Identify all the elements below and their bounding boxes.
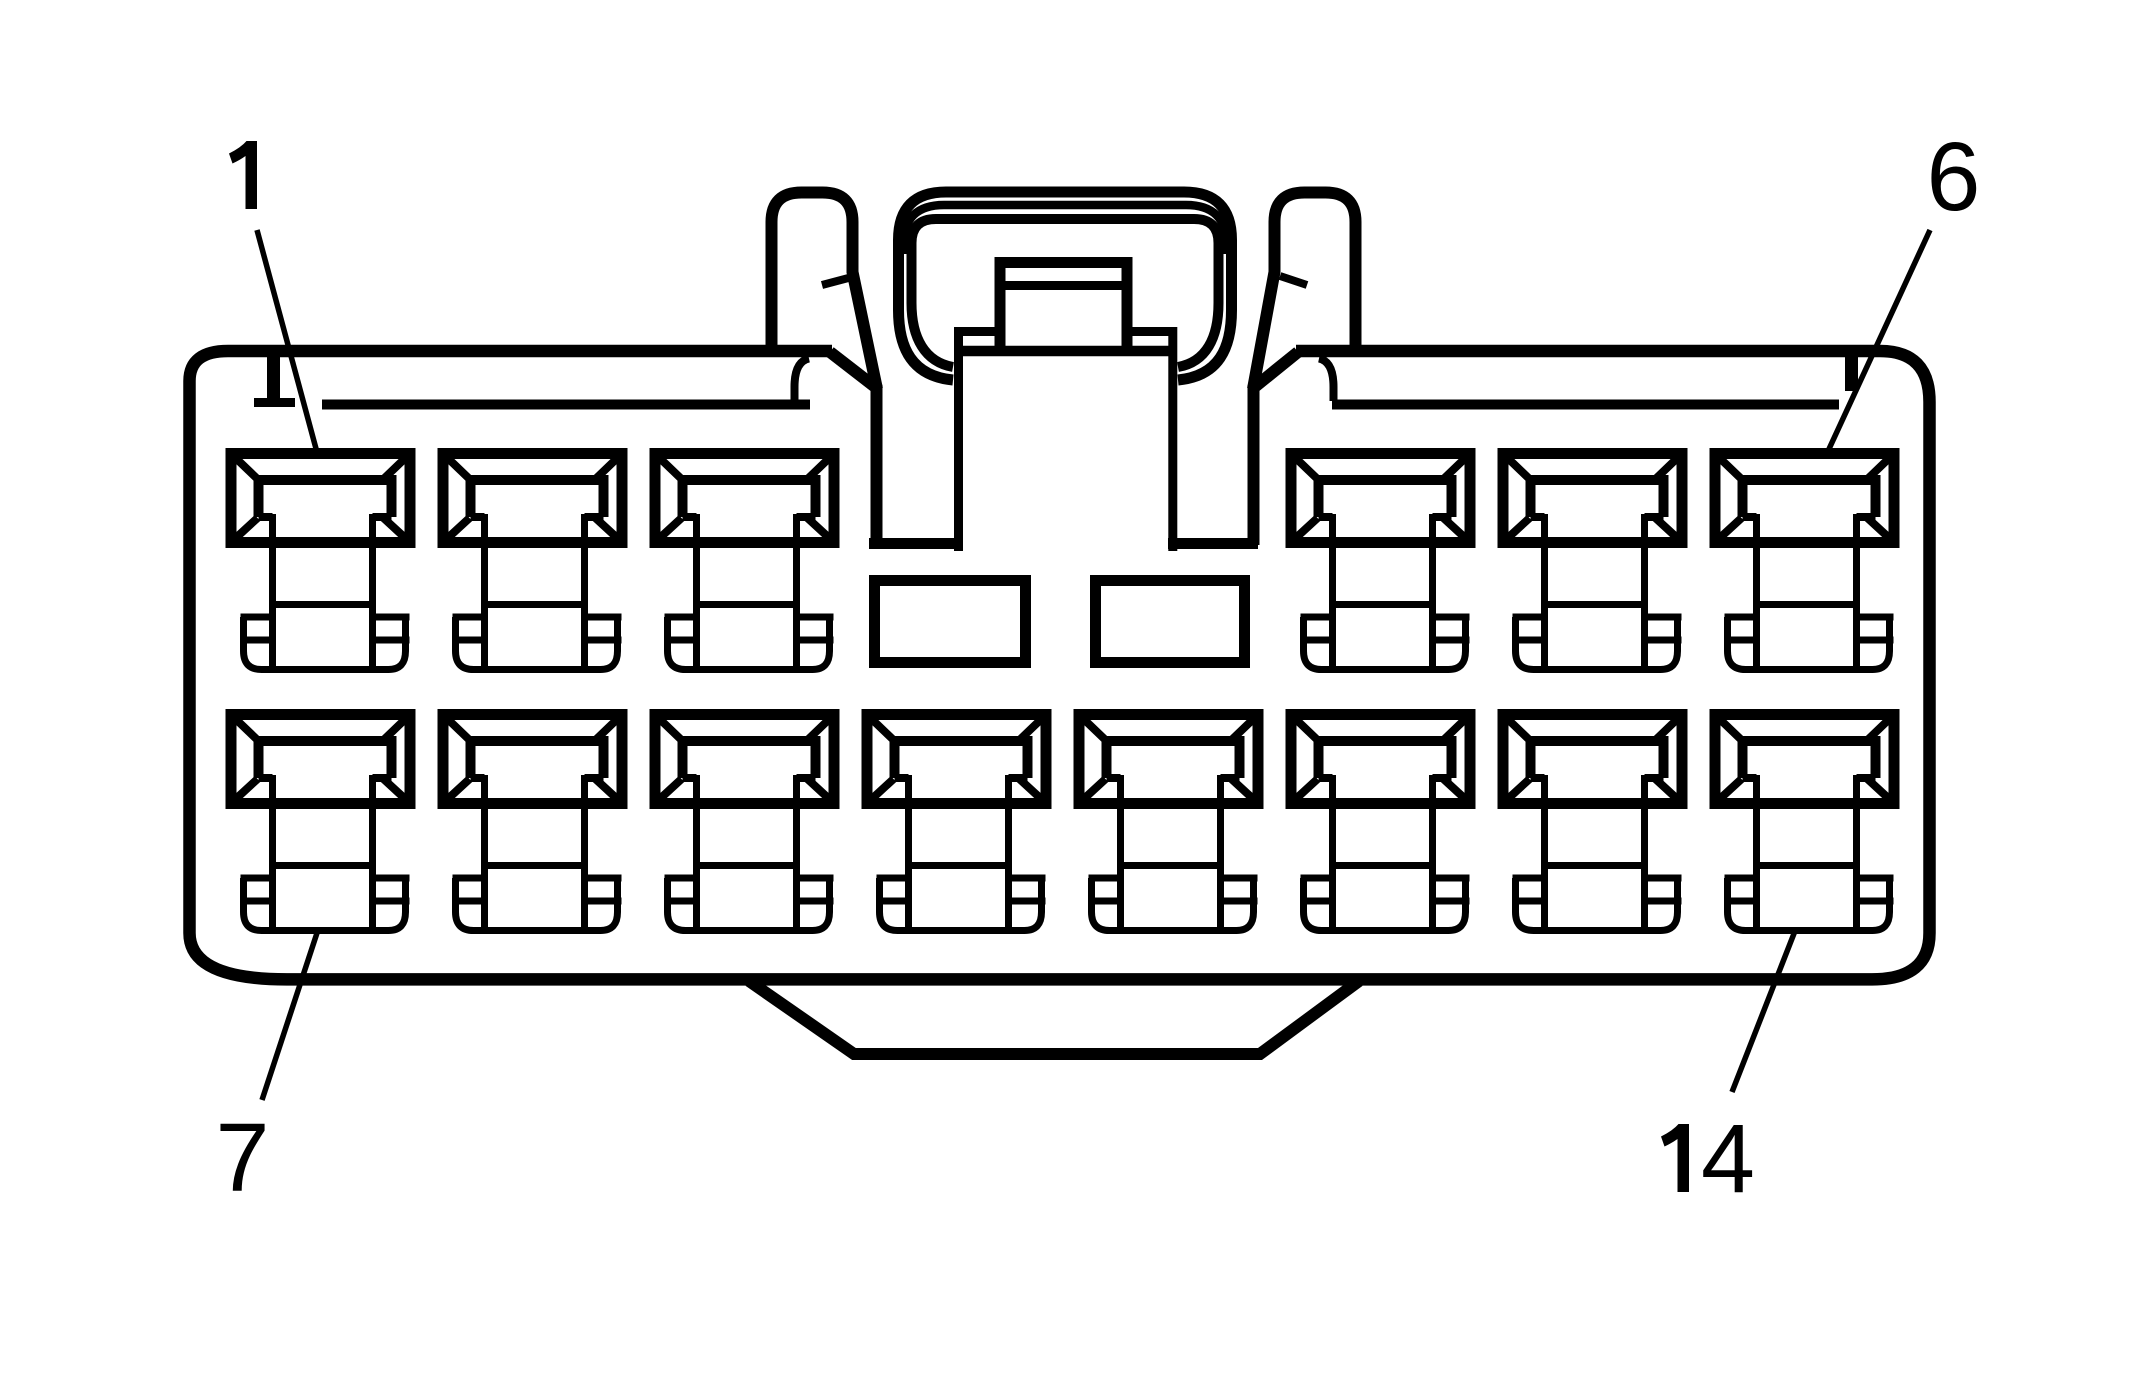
svg-text:6: 6 bbox=[1927, 122, 1981, 231]
svg-text:7: 7 bbox=[216, 1103, 270, 1212]
svg-text:4: 4 bbox=[1701, 1104, 1755, 1213]
